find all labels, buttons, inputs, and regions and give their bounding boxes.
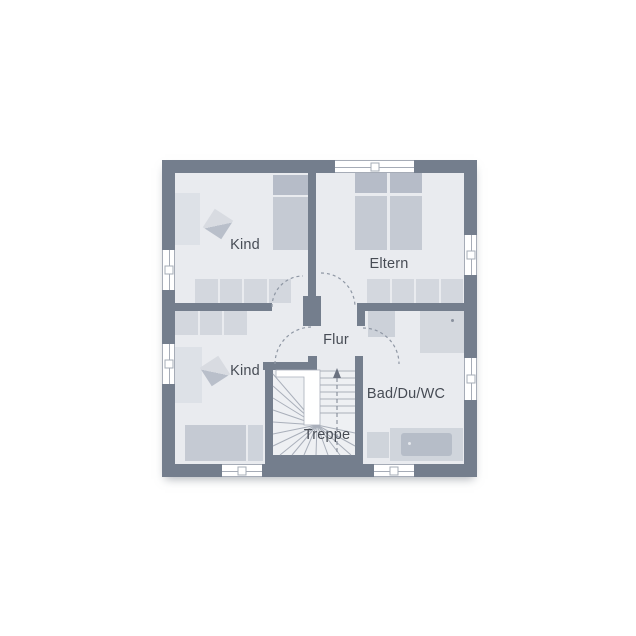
door-swings (272, 273, 399, 364)
room-label-flur: Flur (323, 332, 349, 348)
room-label-kind-top: Kind (230, 237, 260, 253)
room-label-kind-bottom: Kind (230, 363, 260, 379)
room-label-bad: Bad/Du/WC (367, 386, 445, 402)
room-label-treppe: Treppe (304, 427, 351, 443)
door-swing-bad (363, 328, 399, 364)
floor-plan-image: Kind Eltern Flur Kind Bad/Du/WC Treppe (0, 0, 636, 636)
door-swing-kind-top (272, 276, 303, 307)
stairs-and-doors-overlay (0, 0, 636, 636)
door-swing-eltern (321, 273, 355, 307)
room-label-eltern: Eltern (369, 256, 408, 272)
door-swing-kind-bottom (275, 327, 312, 364)
